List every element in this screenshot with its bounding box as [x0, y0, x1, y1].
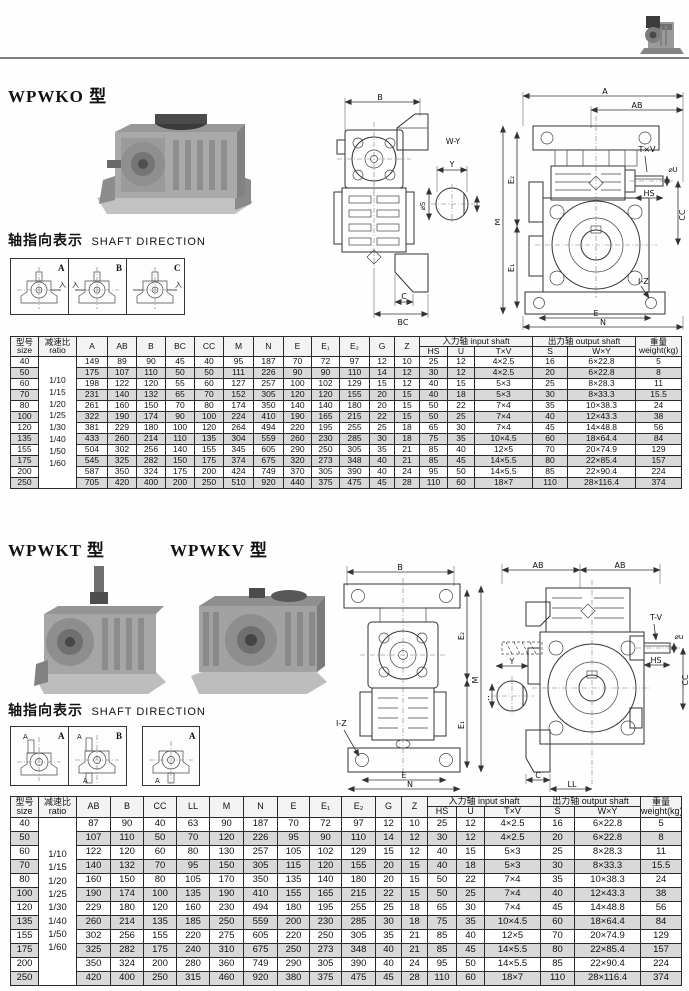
- dim-label-m: M: [471, 676, 480, 683]
- value-cell: 24: [395, 466, 420, 477]
- column-header: W×Y: [575, 807, 641, 817]
- value-cell: 100: [166, 422, 195, 433]
- value-cell: 305: [244, 859, 278, 873]
- value-cell: 90: [166, 411, 195, 422]
- value-cell: 20×74.9: [568, 444, 636, 455]
- value-cell: 45: [370, 477, 395, 488]
- value-cell: 35: [533, 400, 568, 411]
- value-cell: 18×7: [485, 971, 541, 985]
- value-cell: 255: [340, 422, 370, 433]
- value-cell: 200: [144, 957, 177, 971]
- value-cell: 195: [310, 901, 342, 915]
- value-cell: 285: [342, 915, 376, 929]
- value-cell: 224: [224, 411, 254, 422]
- value-cell: 129: [340, 378, 370, 389]
- value-cell: 290: [284, 444, 312, 455]
- table-row: 802611601507080174350140140180201550227×…: [11, 400, 682, 411]
- column-header: B: [111, 797, 144, 818]
- value-cell: 325: [108, 455, 137, 466]
- value-cell: 160: [177, 901, 210, 915]
- value-cell: 50: [428, 873, 457, 887]
- dim-label-ll: LL: [568, 780, 577, 789]
- value-cell: 705: [77, 477, 108, 488]
- value-cell: 7×4: [485, 873, 541, 887]
- value-cell: 460: [210, 971, 244, 985]
- value-cell: 250: [210, 915, 244, 929]
- value-cell: 56: [636, 422, 682, 433]
- value-cell: 130: [210, 845, 244, 859]
- value-cell: 165: [310, 887, 342, 901]
- column-header: CC: [195, 337, 224, 357]
- value-cell: 50: [166, 367, 195, 378]
- value-cell: 494: [244, 901, 278, 915]
- table-row: 601981221205560127257100102129151240155×…: [11, 378, 682, 389]
- size-cell: 50: [11, 831, 39, 845]
- value-cell: 70: [541, 929, 575, 943]
- in-mark: 入: [72, 281, 79, 289]
- value-cell: 122: [108, 378, 137, 389]
- column-header: T×V: [485, 807, 541, 817]
- value-cell: 110: [541, 971, 575, 985]
- value-cell: 110: [533, 477, 568, 488]
- value-cell: 260: [284, 433, 312, 444]
- column-header: 入力轴 input shaft: [420, 337, 533, 347]
- value-cell: 50: [195, 367, 224, 378]
- value-cell: 18: [448, 389, 475, 400]
- column-header: G: [376, 797, 402, 818]
- value-cell: 132: [111, 859, 144, 873]
- value-cell: 95: [278, 831, 310, 845]
- value-cell: 90: [312, 367, 340, 378]
- value-cell: 273: [310, 943, 342, 957]
- value-cell: 72: [310, 817, 342, 831]
- size-cell: 40: [11, 356, 39, 367]
- value-cell: 14×48.8: [575, 901, 641, 915]
- value-cell: 40: [428, 845, 457, 859]
- value-cell: 155: [144, 929, 177, 943]
- value-cell: 28: [402, 971, 428, 985]
- detail-label-y: Y: [509, 657, 515, 666]
- value-cell: 325: [77, 943, 111, 957]
- detail-label-s: ⌀S: [419, 201, 427, 210]
- value-cell: 400: [137, 477, 166, 488]
- value-cell: 85: [428, 929, 457, 943]
- value-cell: 12×5: [475, 444, 533, 455]
- value-cell: 15: [448, 378, 475, 389]
- value-cell: 220: [278, 929, 310, 943]
- value-cell: 25: [533, 378, 568, 389]
- table-row: 1003221901749010022441019016521522155025…: [11, 411, 682, 422]
- table-row: 2005873503241752004247493703053904024955…: [11, 466, 682, 477]
- value-cell: 494: [254, 422, 284, 433]
- value-cell: 100: [195, 411, 224, 422]
- value-cell: 105: [278, 845, 310, 859]
- value-cell: 150: [111, 873, 144, 887]
- value-cell: 160: [108, 400, 137, 411]
- value-cell: 14: [370, 367, 395, 378]
- value-cell: 260: [77, 915, 111, 929]
- column-header: 重量 weight(kg): [636, 337, 682, 357]
- value-cell: 15.5: [641, 859, 682, 873]
- value-cell: 152: [224, 389, 254, 400]
- value-cell: 260: [108, 433, 137, 444]
- value-cell: 424: [224, 466, 254, 477]
- size-cell: 80: [11, 400, 39, 411]
- shaft-direction-en: SHAFT DIRECTION: [91, 706, 205, 718]
- dim-label-cc: CC: [678, 209, 687, 221]
- dim-label-m: M: [495, 218, 502, 225]
- column-header: M: [224, 337, 254, 357]
- value-cell: 40: [370, 466, 395, 477]
- value-cell: 174: [224, 400, 254, 411]
- column-header: T×V: [475, 346, 533, 356]
- value-cell: 200: [278, 915, 310, 929]
- value-cell: 65: [420, 422, 448, 433]
- table-row: 100190174100135190410155165215221550257×…: [11, 887, 682, 901]
- dim-label-n: N: [407, 780, 413, 789]
- value-cell: 21: [395, 455, 420, 466]
- value-cell: 190: [77, 887, 111, 901]
- value-cell: 30: [533, 389, 568, 400]
- value-cell: 15: [395, 389, 420, 400]
- value-cell: 25: [457, 887, 485, 901]
- value-cell: 75: [428, 915, 457, 929]
- value-cell: 90: [137, 356, 166, 367]
- value-cell: 360: [210, 957, 244, 971]
- dim-label-u: ⌀U: [668, 166, 677, 174]
- dim-label-e2: E₂: [507, 176, 516, 184]
- size-cell: 70: [11, 389, 39, 400]
- column-header: HS: [420, 346, 448, 356]
- value-cell: 14×48.8: [568, 422, 636, 433]
- dim-label-iz: I-Z: [638, 277, 649, 286]
- value-cell: 256: [137, 444, 166, 455]
- table-row: 2003503242002803607492903053904024955014…: [11, 957, 682, 971]
- value-cell: 50: [420, 400, 448, 411]
- value-cell: 89: [108, 356, 137, 367]
- value-cell: 12: [395, 367, 420, 378]
- corner-product-photo: [640, 8, 684, 58]
- table-row: 5010711050701202269590110141230124×2.520…: [11, 831, 682, 845]
- column-header: U: [457, 807, 485, 817]
- size-cell: 155: [11, 929, 39, 943]
- size-cell: 135: [11, 915, 39, 929]
- size-cell: 250: [11, 971, 39, 985]
- value-cell: 150: [166, 455, 195, 466]
- value-cell: 140: [310, 873, 342, 887]
- table-row: 2507054204002002505109204403754754528110…: [11, 477, 682, 488]
- value-cell: 28: [395, 477, 420, 488]
- value-cell: 24: [402, 957, 428, 971]
- size-cell: 200: [11, 957, 39, 971]
- value-cell: 315: [177, 971, 210, 985]
- value-cell: 374: [641, 971, 682, 985]
- value-cell: 229: [108, 422, 137, 433]
- value-cell: 85: [541, 957, 575, 971]
- table-row: 120229180120160230494180195255251865307×…: [11, 901, 682, 915]
- column-header: B: [137, 337, 166, 357]
- value-cell: 224: [641, 957, 682, 971]
- column-header: 型号 size: [11, 797, 39, 818]
- value-cell: 587: [77, 466, 108, 477]
- column-header: BC: [166, 337, 195, 357]
- dim-label-u: ⌀u: [675, 633, 684, 641]
- value-cell: 80: [195, 400, 224, 411]
- column-header: CC: [144, 797, 177, 818]
- value-cell: 15: [376, 845, 402, 859]
- panel-letter: A: [58, 731, 65, 741]
- dim-label-iz: I-Z: [336, 719, 347, 728]
- value-cell: 370: [284, 466, 312, 477]
- value-cell: 18×64.4: [568, 433, 636, 444]
- value-cell: 7×4: [485, 901, 541, 915]
- dim-label-n: N: [600, 318, 606, 327]
- value-cell: 12: [448, 367, 475, 378]
- column-header: HS: [428, 807, 457, 817]
- header-divider: [0, 57, 689, 59]
- value-cell: 15: [402, 859, 428, 873]
- column-header: E₂: [340, 337, 370, 357]
- value-cell: 410: [254, 411, 284, 422]
- value-cell: 257: [254, 378, 284, 389]
- value-cell: 80: [144, 873, 177, 887]
- value-cell: 374: [224, 455, 254, 466]
- panel-letter: C: [174, 263, 181, 273]
- size-cell: 60: [11, 378, 39, 389]
- value-cell: 12×43.3: [568, 411, 636, 422]
- value-cell: 220: [177, 929, 210, 943]
- value-cell: 190: [108, 411, 137, 422]
- value-cell: 350: [254, 400, 284, 411]
- value-cell: 348: [342, 943, 376, 957]
- value-cell: 20: [541, 831, 575, 845]
- wpwko-dimension-table: 型号 size减速比 ratioAABBBCCCMNEE₁E₂GZ入力轴 inp…: [10, 336, 682, 489]
- value-cell: 132: [137, 389, 166, 400]
- table-row: 601221206080130257105102129151240155×325…: [11, 845, 682, 859]
- value-cell: 160: [77, 873, 111, 887]
- value-cell: 63: [177, 817, 210, 831]
- value-cell: 4×2.5: [475, 356, 533, 367]
- value-cell: 102: [312, 378, 340, 389]
- value-cell: 175: [77, 367, 108, 378]
- value-cell: 290: [278, 957, 310, 971]
- column-header: 减速比 ratio: [39, 337, 77, 357]
- value-cell: 20×74.9: [575, 929, 641, 943]
- value-cell: 135: [177, 887, 210, 901]
- value-cell: 129: [342, 845, 376, 859]
- value-cell: 60: [448, 477, 475, 488]
- in-mark: 入: [59, 281, 66, 289]
- value-cell: 38: [641, 887, 682, 901]
- value-cell: 320: [284, 455, 312, 466]
- value-cell: 5×3: [485, 845, 541, 859]
- value-cell: 140: [108, 389, 137, 400]
- value-cell: 229: [77, 901, 111, 915]
- value-cell: 280: [177, 957, 210, 971]
- shaft-direction-heading-2: 轴指向表示 SHAFT DIRECTION: [8, 700, 206, 720]
- value-cell: 30: [541, 859, 575, 873]
- a-mark: A: [77, 733, 82, 741]
- value-cell: 220: [284, 422, 312, 433]
- value-cell: 155: [278, 887, 310, 901]
- value-cell: 6×22.8: [575, 831, 641, 845]
- wpwko-front-drawing: B C BC W-Y Y ⌀S: [325, 92, 495, 332]
- a-mark: A: [23, 733, 28, 741]
- value-cell: 22: [448, 400, 475, 411]
- value-cell: 440: [284, 477, 312, 488]
- value-cell: 110: [111, 831, 144, 845]
- value-cell: 302: [108, 444, 137, 455]
- catalog-page: WPWKO 型 B: [0, 0, 689, 991]
- value-cell: 40: [420, 389, 448, 400]
- value-cell: 14: [376, 831, 402, 845]
- value-cell: 25: [376, 901, 402, 915]
- value-cell: 305: [310, 957, 342, 971]
- column-header: E: [278, 797, 310, 818]
- value-cell: 226: [254, 367, 284, 378]
- value-cell: 80: [541, 943, 575, 957]
- value-cell: 20: [376, 873, 402, 887]
- dim-label-ab2: AB: [615, 561, 626, 570]
- detail-label-y: Y: [449, 160, 455, 169]
- value-cell: 90: [111, 817, 144, 831]
- value-cell: 18: [402, 901, 428, 915]
- value-cell: 35: [448, 433, 475, 444]
- column-header: N: [244, 797, 278, 818]
- dim-label-c: C: [535, 771, 541, 780]
- value-cell: 50: [448, 466, 475, 477]
- value-cell: 35: [457, 915, 485, 929]
- dim-label-e: E: [401, 771, 406, 780]
- value-cell: 72: [312, 356, 340, 367]
- shaft-direction-panel-b: B 入: [68, 258, 127, 315]
- value-cell: 605: [254, 444, 284, 455]
- value-cell: 24: [636, 400, 682, 411]
- column-header: M: [210, 797, 244, 818]
- value-cell: 20: [376, 859, 402, 873]
- value-cell: 25: [420, 356, 448, 367]
- column-header: E₁: [312, 337, 340, 357]
- value-cell: 282: [137, 455, 166, 466]
- value-cell: 16: [533, 356, 568, 367]
- value-cell: 140: [284, 400, 312, 411]
- value-cell: 5: [636, 356, 682, 367]
- value-cell: 149: [77, 356, 108, 367]
- size-cell: 155: [11, 444, 39, 455]
- table-row: 1553022561552202756052202503053521854012…: [11, 929, 682, 943]
- value-cell: 18×64.4: [575, 915, 641, 929]
- size-cell: 120: [11, 901, 39, 915]
- value-cell: 120: [195, 422, 224, 433]
- value-cell: 40: [376, 957, 402, 971]
- value-cell: 5: [641, 817, 682, 831]
- value-cell: 25: [541, 845, 575, 859]
- value-cell: 60: [195, 378, 224, 389]
- value-cell: 22: [457, 873, 485, 887]
- value-cell: 70: [278, 817, 310, 831]
- value-cell: 50: [428, 887, 457, 901]
- value-cell: 97: [342, 817, 376, 831]
- value-cell: 115: [278, 859, 310, 873]
- size-cell: 70: [11, 859, 39, 873]
- value-cell: 129: [636, 444, 682, 455]
- value-cell: 305: [340, 444, 370, 455]
- table-row: 1753252821752403106752502733484021854514…: [11, 943, 682, 957]
- value-cell: 120: [284, 389, 312, 400]
- value-cell: 40: [195, 356, 224, 367]
- value-cell: 70: [533, 444, 568, 455]
- value-cell: 40: [144, 817, 177, 831]
- value-cell: 345: [224, 444, 254, 455]
- value-cell: 12×5: [485, 929, 541, 943]
- value-cell: 107: [108, 367, 137, 378]
- wpwkt-product-photo: [28, 562, 168, 700]
- ratio-cell: 1/10 1/15 1/20 1/25 1/30 1/40 1/50 1/60: [39, 356, 77, 488]
- value-cell: 110: [137, 367, 166, 378]
- value-cell: 38: [636, 411, 682, 422]
- value-cell: 45: [166, 356, 195, 367]
- value-cell: 230: [312, 433, 340, 444]
- value-cell: 25: [448, 411, 475, 422]
- value-cell: 22: [376, 887, 402, 901]
- value-cell: 35: [541, 873, 575, 887]
- value-cell: 15: [457, 845, 485, 859]
- size-cell: 135: [11, 433, 39, 444]
- table-row: 1203812291801001202644942201952552518653…: [11, 422, 682, 433]
- table-row: 401/10 1/15 1/20 1/25 1/30 1/40 1/50 1/6…: [11, 817, 682, 831]
- dim-label-ab: AB: [632, 101, 643, 110]
- value-cell: 22×85.4: [575, 943, 641, 957]
- value-cell: 97: [340, 356, 370, 367]
- value-cell: 420: [108, 477, 137, 488]
- value-cell: 920: [254, 477, 284, 488]
- value-cell: 10×4.5: [485, 915, 541, 929]
- shaft-direction2-panel-c: A A: [142, 726, 200, 786]
- value-cell: 30: [420, 367, 448, 378]
- value-cell: 545: [77, 455, 108, 466]
- value-cell: 305: [312, 466, 340, 477]
- value-cell: 195: [312, 422, 340, 433]
- value-cell: 122: [77, 845, 111, 859]
- value-cell: 70: [144, 859, 177, 873]
- value-cell: 250: [312, 444, 340, 455]
- wpwkv-product-photo: [185, 578, 330, 700]
- column-header: G: [370, 337, 395, 357]
- table-row: 8016015080105170350135140180201550227×43…: [11, 873, 682, 887]
- value-cell: 256: [111, 929, 144, 943]
- panel-letter: B: [116, 263, 122, 273]
- value-cell: 65: [166, 389, 195, 400]
- size-cell: 120: [11, 422, 39, 433]
- table-row: 1555043022561401553456052902503053521854…: [11, 444, 682, 455]
- column-header: E: [284, 337, 312, 357]
- value-cell: 60: [541, 915, 575, 929]
- value-cell: 90: [310, 831, 342, 845]
- value-cell: 70: [177, 831, 210, 845]
- value-cell: 21: [395, 444, 420, 455]
- value-cell: 190: [210, 887, 244, 901]
- value-cell: 102: [310, 845, 342, 859]
- table-row: 701401327095150305115120155201540185×330…: [11, 859, 682, 873]
- value-cell: 40: [533, 411, 568, 422]
- value-cell: 6×22.8: [568, 367, 636, 378]
- value-cell: 180: [340, 400, 370, 411]
- value-cell: 420: [77, 971, 111, 985]
- size-cell: 60: [11, 845, 39, 859]
- value-cell: 21: [402, 943, 428, 957]
- value-cell: 375: [312, 477, 340, 488]
- table-row: 401/10 1/15 1/20 1/25 1/30 1/40 1/50 1/6…: [11, 356, 682, 367]
